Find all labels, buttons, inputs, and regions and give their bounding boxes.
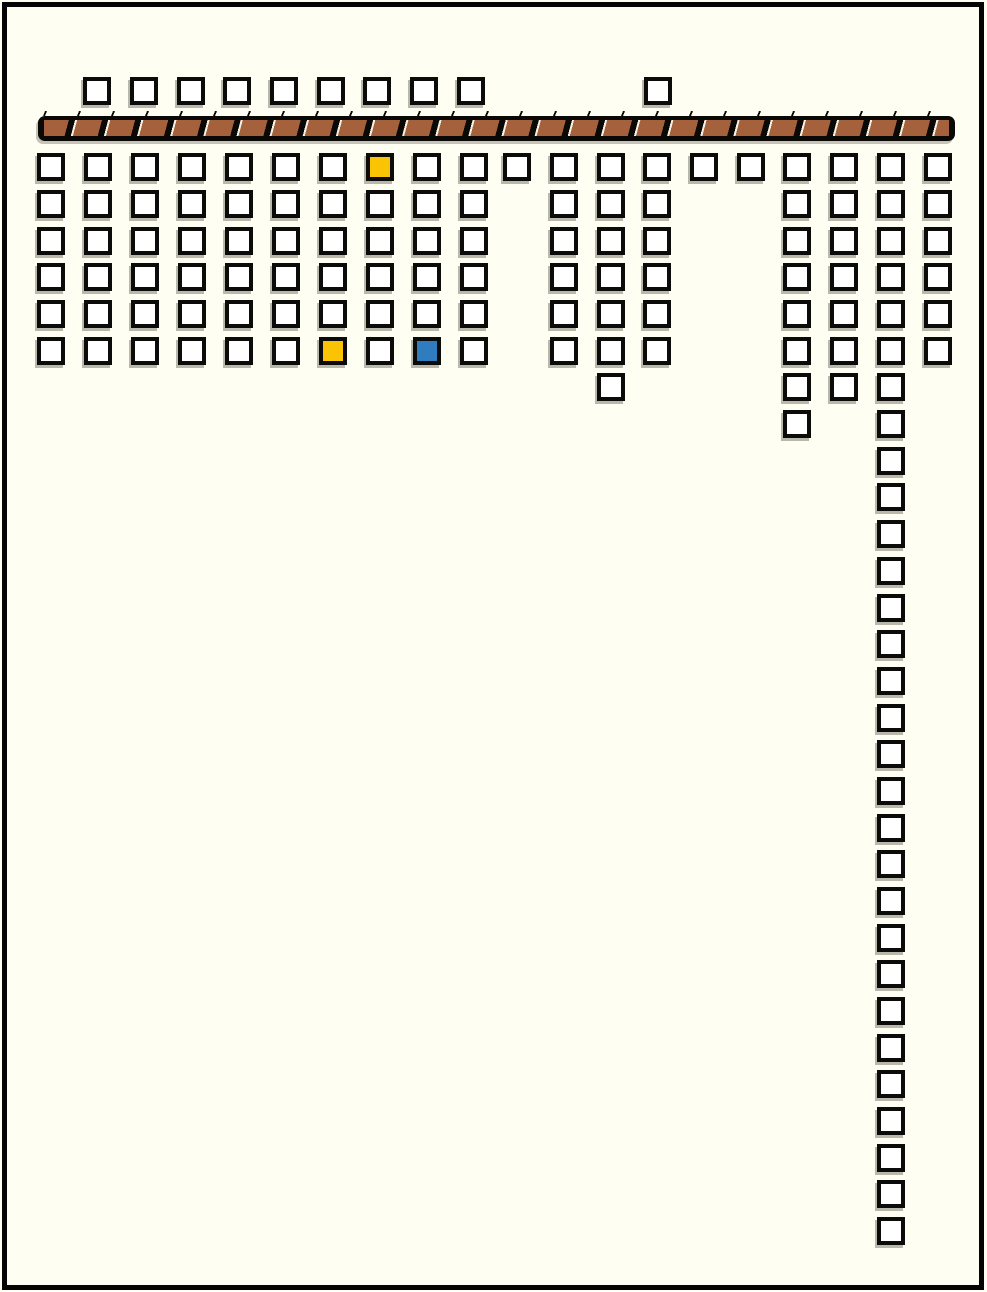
board-square[interactable]: [550, 300, 578, 328]
board-square[interactable]: [597, 190, 625, 218]
board-square[interactable]: [877, 667, 905, 695]
board-square[interactable]: [503, 153, 531, 181]
board-square[interactable]: [223, 77, 251, 105]
board-square[interactable]: [319, 153, 347, 181]
board-square[interactable]: [84, 153, 112, 181]
board-square[interactable]: [643, 153, 671, 181]
board-square[interactable]: [225, 263, 253, 291]
board-square[interactable]: [460, 337, 488, 365]
board-square[interactable]: [877, 373, 905, 401]
board-square[interactable]: [877, 1180, 905, 1208]
board-square[interactable]: [924, 300, 952, 328]
board-square[interactable]: [272, 190, 300, 218]
board-square[interactable]: [783, 227, 811, 255]
board-square[interactable]: [877, 1107, 905, 1135]
board-square[interactable]: [597, 337, 625, 365]
board-square[interactable]: [272, 227, 300, 255]
board-square[interactable]: [877, 520, 905, 548]
board-square[interactable]: [597, 227, 625, 255]
board-square[interactable]: [460, 190, 488, 218]
board-square[interactable]: [877, 1144, 905, 1172]
board-square[interactable]: [643, 337, 671, 365]
board-square[interactable]: [84, 337, 112, 365]
board-square[interactable]: [37, 227, 65, 255]
board-square[interactable]: [366, 227, 394, 255]
board-square[interactable]: [130, 77, 158, 105]
board-square[interactable]: [924, 153, 952, 181]
board-square[interactable]: [317, 77, 345, 105]
board-square[interactable]: [877, 777, 905, 805]
board-square[interactable]: [830, 300, 858, 328]
board-square[interactable]: [177, 77, 205, 105]
board-square[interactable]: [84, 190, 112, 218]
board-square[interactable]: [550, 153, 578, 181]
board-square[interactable]: [272, 153, 300, 181]
board-square[interactable]: [924, 263, 952, 291]
board-square[interactable]: [877, 630, 905, 658]
board-square[interactable]: [830, 227, 858, 255]
board-square[interactable]: [877, 153, 905, 181]
board-square[interactable]: [84, 300, 112, 328]
board-square[interactable]: [319, 190, 347, 218]
board-square[interactable]: [877, 557, 905, 585]
board-square[interactable]: [830, 373, 858, 401]
board-square[interactable]: [37, 300, 65, 328]
board-square[interactable]: [37, 190, 65, 218]
board-square[interactable]: [131, 300, 159, 328]
board-square[interactable]: [460, 153, 488, 181]
board-square[interactable]: [83, 77, 111, 105]
board-square[interactable]: [924, 190, 952, 218]
board-square[interactable]: [131, 153, 159, 181]
board-square[interactable]: [460, 227, 488, 255]
board-square[interactable]: [783, 153, 811, 181]
board-square[interactable]: [225, 190, 253, 218]
board-square[interactable]: [597, 153, 625, 181]
board-square[interactable]: [457, 77, 485, 105]
board-square[interactable]: [178, 227, 206, 255]
board-square[interactable]: [737, 153, 765, 181]
board-square[interactable]: [272, 263, 300, 291]
board-square[interactable]: [178, 153, 206, 181]
board-square[interactable]: [830, 337, 858, 365]
board-square-blue[interactable]: [413, 337, 441, 365]
board-square[interactable]: [178, 300, 206, 328]
board-square[interactable]: [924, 337, 952, 365]
board-square[interactable]: [877, 300, 905, 328]
board-square[interactable]: [830, 153, 858, 181]
board-square[interactable]: [550, 263, 578, 291]
board-square[interactable]: [877, 740, 905, 768]
board-square[interactable]: [550, 227, 578, 255]
board-square[interactable]: [84, 263, 112, 291]
board-square[interactable]: [413, 190, 441, 218]
board-square[interactable]: [413, 263, 441, 291]
board-square[interactable]: [366, 300, 394, 328]
board-square[interactable]: [830, 263, 858, 291]
beam: [38, 116, 955, 141]
board-square[interactable]: [37, 337, 65, 365]
board-square[interactable]: [877, 337, 905, 365]
board-square[interactable]: [877, 960, 905, 988]
board-square[interactable]: [597, 373, 625, 401]
board-square[interactable]: [877, 1034, 905, 1062]
board-square[interactable]: [225, 153, 253, 181]
board-square[interactable]: [550, 190, 578, 218]
board-square[interactable]: [225, 337, 253, 365]
board-square[interactable]: [877, 997, 905, 1025]
board-square[interactable]: [178, 263, 206, 291]
board-square[interactable]: [131, 227, 159, 255]
board-square[interactable]: [84, 227, 112, 255]
board-square[interactable]: [366, 263, 394, 291]
board-square[interactable]: [877, 1070, 905, 1098]
board-square[interactable]: [366, 337, 394, 365]
board-square[interactable]: [877, 190, 905, 218]
board-square[interactable]: [413, 227, 441, 255]
board-square[interactable]: [877, 447, 905, 475]
board-square[interactable]: [877, 850, 905, 878]
board-square[interactable]: [413, 300, 441, 328]
board-square-yellow[interactable]: [319, 337, 347, 365]
board-square[interactable]: [643, 227, 671, 255]
board-square[interactable]: [272, 300, 300, 328]
board-square[interactable]: [550, 337, 578, 365]
board-square[interactable]: [272, 337, 300, 365]
board-square[interactable]: [319, 227, 347, 255]
board-square[interactable]: [643, 190, 671, 218]
board-square[interactable]: [877, 483, 905, 511]
board-square[interactable]: [877, 887, 905, 915]
board-square[interactable]: [830, 190, 858, 218]
board-square[interactable]: [178, 337, 206, 365]
board-square[interactable]: [319, 263, 347, 291]
board-square[interactable]: [877, 263, 905, 291]
board-square[interactable]: [270, 77, 298, 105]
board-square[interactable]: [178, 190, 206, 218]
board-square[interactable]: [783, 410, 811, 438]
app-window: [0, 0, 987, 1292]
board-square[interactable]: [877, 814, 905, 842]
board-square[interactable]: [225, 227, 253, 255]
board-square[interactable]: [783, 263, 811, 291]
board-square[interactable]: [460, 300, 488, 328]
board-square[interactable]: [366, 190, 394, 218]
board-square[interactable]: [783, 300, 811, 328]
board-square[interactable]: [644, 77, 672, 105]
board-square[interactable]: [783, 373, 811, 401]
board-square[interactable]: [131, 337, 159, 365]
board-square[interactable]: [131, 263, 159, 291]
board-square[interactable]: [643, 300, 671, 328]
board-square[interactable]: [924, 227, 952, 255]
board-square[interactable]: [597, 263, 625, 291]
board-square[interactable]: [37, 153, 65, 181]
board-square[interactable]: [783, 190, 811, 218]
board-square[interactable]: [319, 300, 347, 328]
board-square[interactable]: [877, 924, 905, 952]
board-square[interactable]: [460, 263, 488, 291]
board-square[interactable]: [877, 410, 905, 438]
board-square[interactable]: [131, 190, 159, 218]
board-square[interactable]: [643, 263, 671, 291]
board-square[interactable]: [363, 77, 391, 105]
board-square[interactable]: [877, 1217, 905, 1245]
board-square[interactable]: [597, 300, 625, 328]
beam-planks: [44, 120, 949, 136]
board-square-yellow[interactable]: [366, 153, 394, 181]
board-square[interactable]: [877, 227, 905, 255]
board-square[interactable]: [225, 300, 253, 328]
board-square[interactable]: [783, 337, 811, 365]
board-square[interactable]: [37, 263, 65, 291]
board-square[interactable]: [690, 153, 718, 181]
board-square[interactable]: [413, 153, 441, 181]
board-square[interactable]: [877, 594, 905, 622]
board-square[interactable]: [410, 77, 438, 105]
board-square[interactable]: [877, 704, 905, 732]
board: [0, 0, 987, 1292]
